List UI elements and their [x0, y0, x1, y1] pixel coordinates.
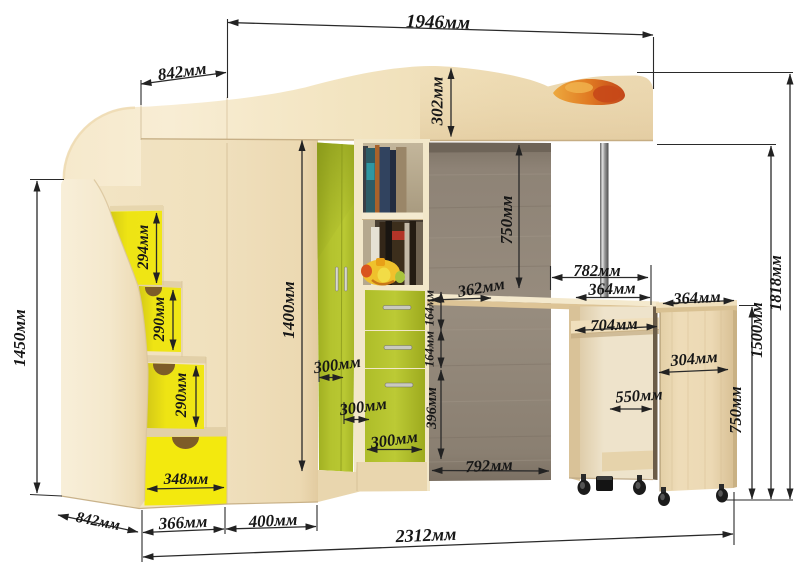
svg-text:348мм: 348мм: [163, 471, 209, 488]
svg-text:400мм: 400мм: [247, 510, 298, 532]
svg-text:1450мм: 1450мм: [10, 309, 29, 367]
svg-text:164мм: 164мм: [423, 290, 437, 326]
svg-text:750мм: 750мм: [497, 195, 516, 244]
svg-text:1400мм: 1400мм: [279, 281, 298, 339]
svg-text:366мм: 366мм: [157, 512, 208, 534]
svg-text:302мм: 302мм: [428, 76, 447, 126]
svg-text:364мм: 364мм: [587, 278, 636, 299]
svg-text:294мм: 294мм: [135, 224, 152, 270]
svg-text:396мм: 396мм: [424, 387, 440, 430]
svg-text:792мм: 792мм: [465, 455, 513, 476]
svg-text:290мм: 290мм: [151, 296, 168, 342]
svg-text:2312мм: 2312мм: [394, 524, 456, 546]
svg-text:750мм: 750мм: [726, 386, 745, 433]
svg-text:1500мм: 1500мм: [747, 302, 766, 358]
svg-text:364мм: 364мм: [672, 287, 721, 309]
svg-text:1818мм: 1818мм: [766, 255, 785, 311]
svg-text:164мм: 164мм: [423, 331, 437, 367]
svg-text:1946мм: 1946мм: [406, 11, 471, 34]
svg-text:550мм: 550мм: [615, 384, 664, 406]
svg-text:782мм: 782мм: [573, 261, 620, 280]
svg-text:704мм: 704мм: [590, 314, 638, 335]
svg-text:290мм: 290мм: [173, 372, 190, 418]
